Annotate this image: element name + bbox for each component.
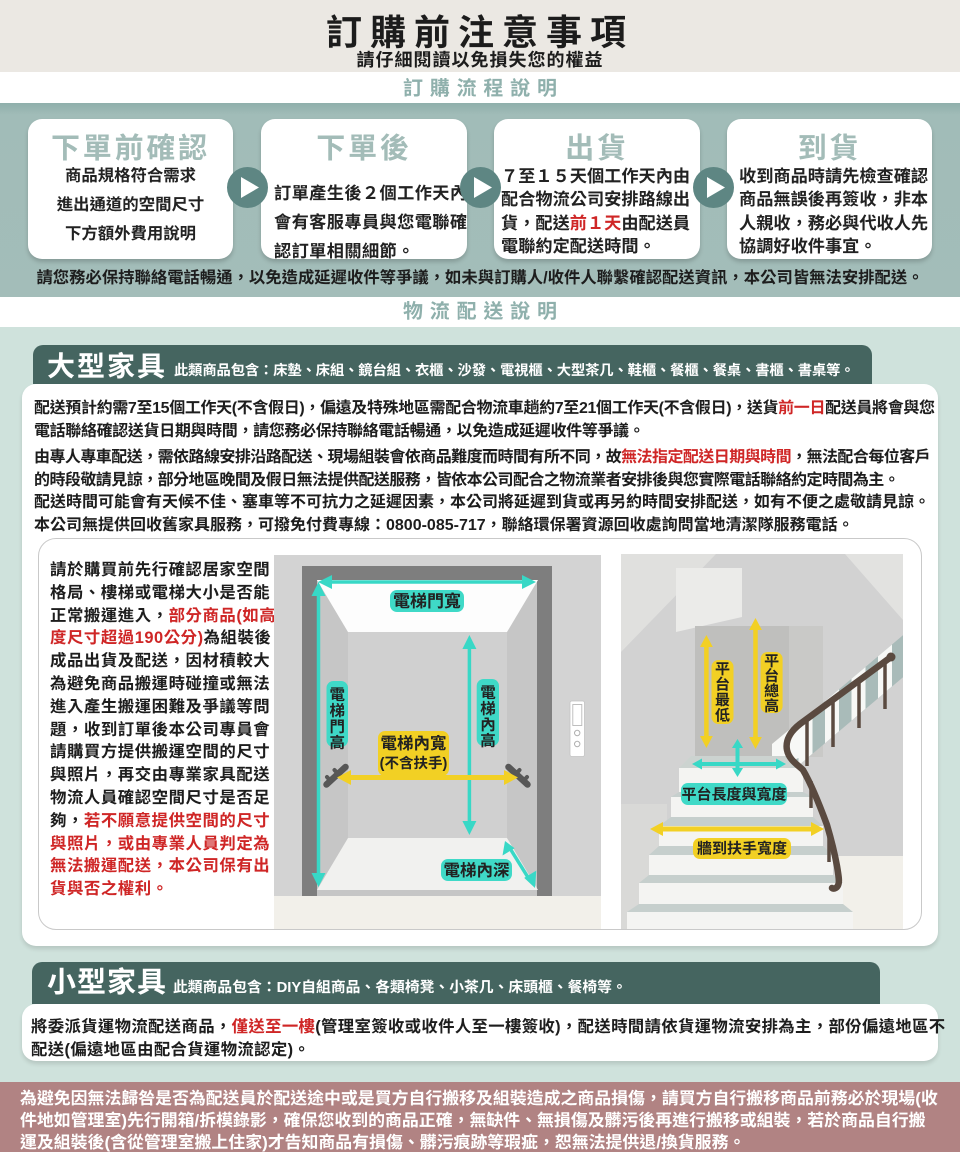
svg-text:最: 最 [715,692,730,709]
svg-text:高: 高 [329,734,345,752]
svg-text:高: 高 [764,698,779,715]
svg-text:電梯內深: 電梯內深 [444,861,511,880]
svg-text:電: 電 [480,685,496,702]
svg-text:平: 平 [715,661,730,678]
svg-text:平台長度與寬度: 平台長度與寬度 [681,787,786,804]
svg-text:電梯內寬: 電梯內寬 [381,734,447,753]
svg-text:電梯門寬: 電梯門寬 [393,592,461,611]
svg-text:牆到扶手寬度: 牆到扶手寬度 [697,841,787,858]
svg-text:梯: 梯 [480,700,496,718]
svg-text:台: 台 [715,677,730,694]
svg-text:高: 高 [480,732,496,750]
svg-text:低: 低 [715,708,730,725]
svg-text:電: 電 [329,687,345,704]
svg-text:內: 內 [480,717,496,734]
svg-text:(不含扶手): (不含扶手) [380,755,448,772]
svg-text:梯: 梯 [329,702,345,720]
svg-text:門: 門 [329,719,345,736]
